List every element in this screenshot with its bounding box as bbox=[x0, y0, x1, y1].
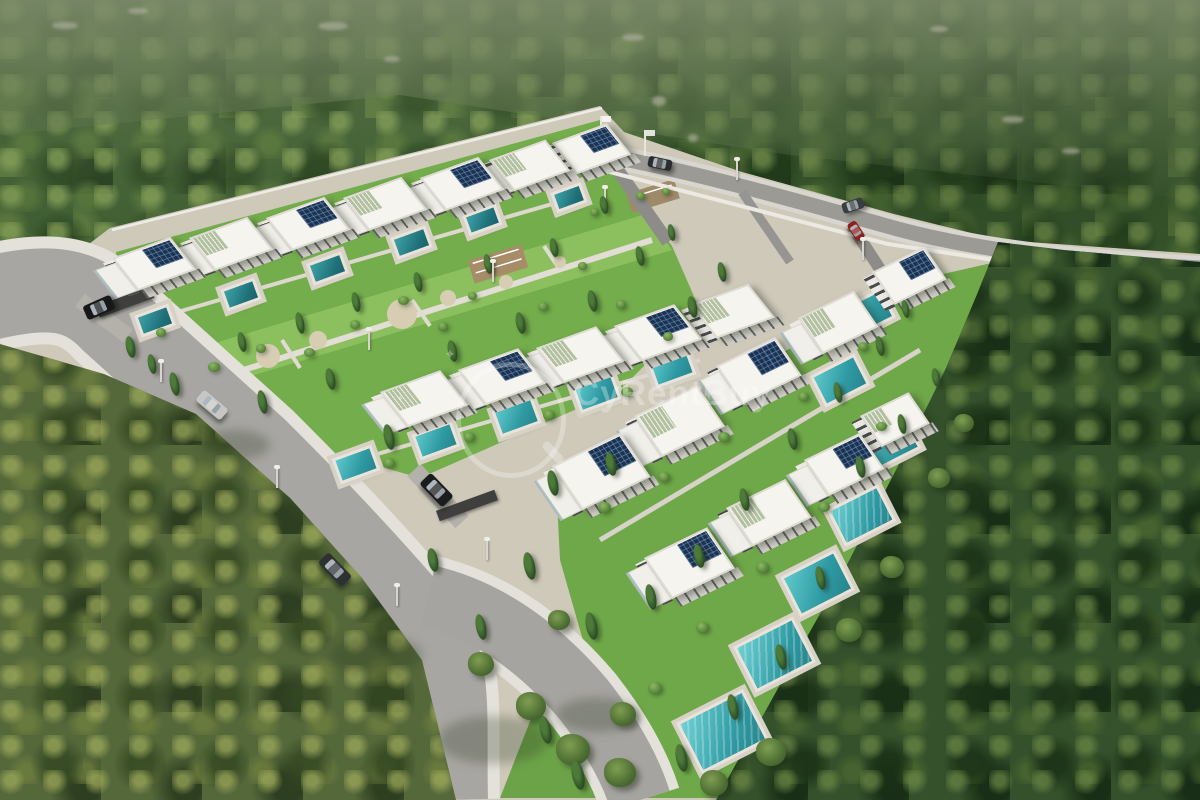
cypress-tree bbox=[426, 547, 441, 573]
olive-tree bbox=[756, 738, 786, 766]
lamp-head bbox=[394, 583, 400, 587]
swimming-pool bbox=[138, 307, 172, 333]
street-lamp bbox=[276, 468, 278, 488]
lamp-head bbox=[490, 259, 496, 263]
lamp-head bbox=[734, 157, 740, 161]
swimming-pool bbox=[335, 448, 376, 480]
lamp-head bbox=[158, 359, 164, 363]
cypress-tree bbox=[412, 271, 424, 292]
lamp-head bbox=[274, 465, 280, 469]
garden-bush bbox=[696, 622, 709, 633]
tree-shadow bbox=[330, 636, 422, 674]
silver-coupe bbox=[195, 389, 229, 420]
garden-bush bbox=[636, 192, 645, 200]
olive-tree bbox=[548, 610, 570, 630]
garden-bush bbox=[208, 362, 220, 372]
street-lamp bbox=[492, 262, 494, 282]
cypress-tree bbox=[673, 743, 690, 773]
street-lamp bbox=[862, 240, 864, 260]
cypress-tree bbox=[569, 759, 587, 791]
garden-bush bbox=[398, 296, 409, 305]
garden-bush bbox=[621, 387, 633, 397]
swimming-pool bbox=[680, 693, 765, 770]
cypress-tree bbox=[586, 289, 599, 312]
cypress-tree bbox=[446, 339, 459, 362]
garden-bush bbox=[756, 562, 769, 573]
cypress-tree bbox=[786, 427, 799, 450]
garden-bush bbox=[590, 208, 599, 216]
cypress-tree bbox=[548, 237, 560, 257]
cypress-tree bbox=[583, 611, 600, 641]
cypress-tree bbox=[716, 261, 728, 282]
cypress-tree bbox=[324, 367, 337, 390]
lamp-head bbox=[366, 327, 372, 331]
lamp-head bbox=[602, 185, 608, 189]
olive-tree bbox=[610, 702, 636, 726]
street-lamp bbox=[736, 160, 738, 180]
flag-banner bbox=[646, 130, 655, 136]
flag-banner bbox=[602, 116, 611, 122]
cypress-tree bbox=[930, 367, 942, 387]
garden-bush bbox=[156, 328, 166, 337]
dark-car-parked bbox=[841, 197, 865, 214]
olive-tree bbox=[880, 556, 904, 578]
cypress-tree bbox=[124, 335, 137, 358]
garden-bush bbox=[350, 320, 360, 329]
garden-bush bbox=[468, 292, 477, 300]
street-lamp bbox=[486, 540, 488, 560]
cypress-tree bbox=[598, 195, 610, 214]
lamp-head bbox=[860, 237, 866, 241]
olive-tree bbox=[928, 468, 950, 488]
street-lamp bbox=[160, 362, 162, 382]
black-suv-parked bbox=[419, 473, 453, 508]
cypress-tree bbox=[256, 389, 270, 414]
garden-bush bbox=[798, 392, 809, 401]
villa bbox=[860, 392, 930, 447]
garden-bush bbox=[543, 410, 555, 420]
street-lamp bbox=[396, 586, 398, 606]
garden-bush bbox=[658, 472, 670, 482]
cypress-tree bbox=[521, 551, 538, 581]
garden-bush bbox=[538, 302, 548, 311]
garden-bush bbox=[304, 348, 315, 357]
garden-bush bbox=[578, 262, 587, 270]
olive-tree bbox=[836, 618, 862, 642]
garden-bush bbox=[463, 432, 475, 442]
garden-bush bbox=[663, 332, 673, 341]
tree-shadow bbox=[200, 430, 270, 460]
street-lamp bbox=[368, 330, 370, 350]
cypress-tree bbox=[514, 311, 527, 334]
cypress-tree bbox=[350, 291, 362, 312]
garden-bush bbox=[718, 432, 730, 442]
villa bbox=[872, 246, 947, 304]
olive-tree bbox=[954, 414, 974, 432]
swimming-pool bbox=[554, 186, 584, 209]
tree-shadow bbox=[438, 716, 548, 764]
cypress-tree bbox=[666, 223, 676, 241]
swimming-pool bbox=[310, 255, 345, 282]
car-windshield bbox=[850, 224, 862, 237]
lamp-head bbox=[484, 537, 490, 541]
garden-bush bbox=[662, 188, 670, 195]
swimming-pool bbox=[394, 229, 429, 256]
garden-bush bbox=[598, 502, 611, 513]
cypress-tree bbox=[146, 353, 158, 374]
olive-tree bbox=[604, 758, 636, 787]
cypress-tree bbox=[168, 371, 182, 396]
car-windshield bbox=[846, 200, 859, 211]
cypress-tree bbox=[874, 335, 886, 356]
olive-tree bbox=[468, 652, 494, 676]
swimming-pool bbox=[224, 281, 258, 307]
garden-bush bbox=[858, 342, 868, 351]
garden-bush bbox=[256, 344, 266, 353]
cypress-tree bbox=[294, 311, 306, 334]
garden-bush bbox=[818, 502, 830, 512]
garden-bush bbox=[383, 458, 395, 468]
flag-pole bbox=[644, 130, 646, 156]
scene-objects bbox=[0, 0, 1200, 800]
cypress-tree bbox=[473, 613, 488, 641]
car-windshield bbox=[202, 395, 222, 414]
garden-bush bbox=[616, 300, 626, 309]
garden-bush bbox=[648, 682, 662, 694]
car-windshield bbox=[324, 559, 344, 580]
cypress-tree bbox=[634, 245, 646, 266]
car-windshield bbox=[653, 158, 667, 169]
aerial-render: ✦ ✦ CyRentBuy bbox=[0, 0, 1200, 800]
car-windshield bbox=[426, 479, 447, 500]
dark-car bbox=[647, 156, 673, 172]
cypress-tree bbox=[236, 331, 248, 352]
olive-tree bbox=[700, 770, 728, 796]
garden-bush bbox=[438, 322, 448, 331]
villa bbox=[690, 284, 775, 339]
dark-gray-car bbox=[318, 552, 352, 587]
